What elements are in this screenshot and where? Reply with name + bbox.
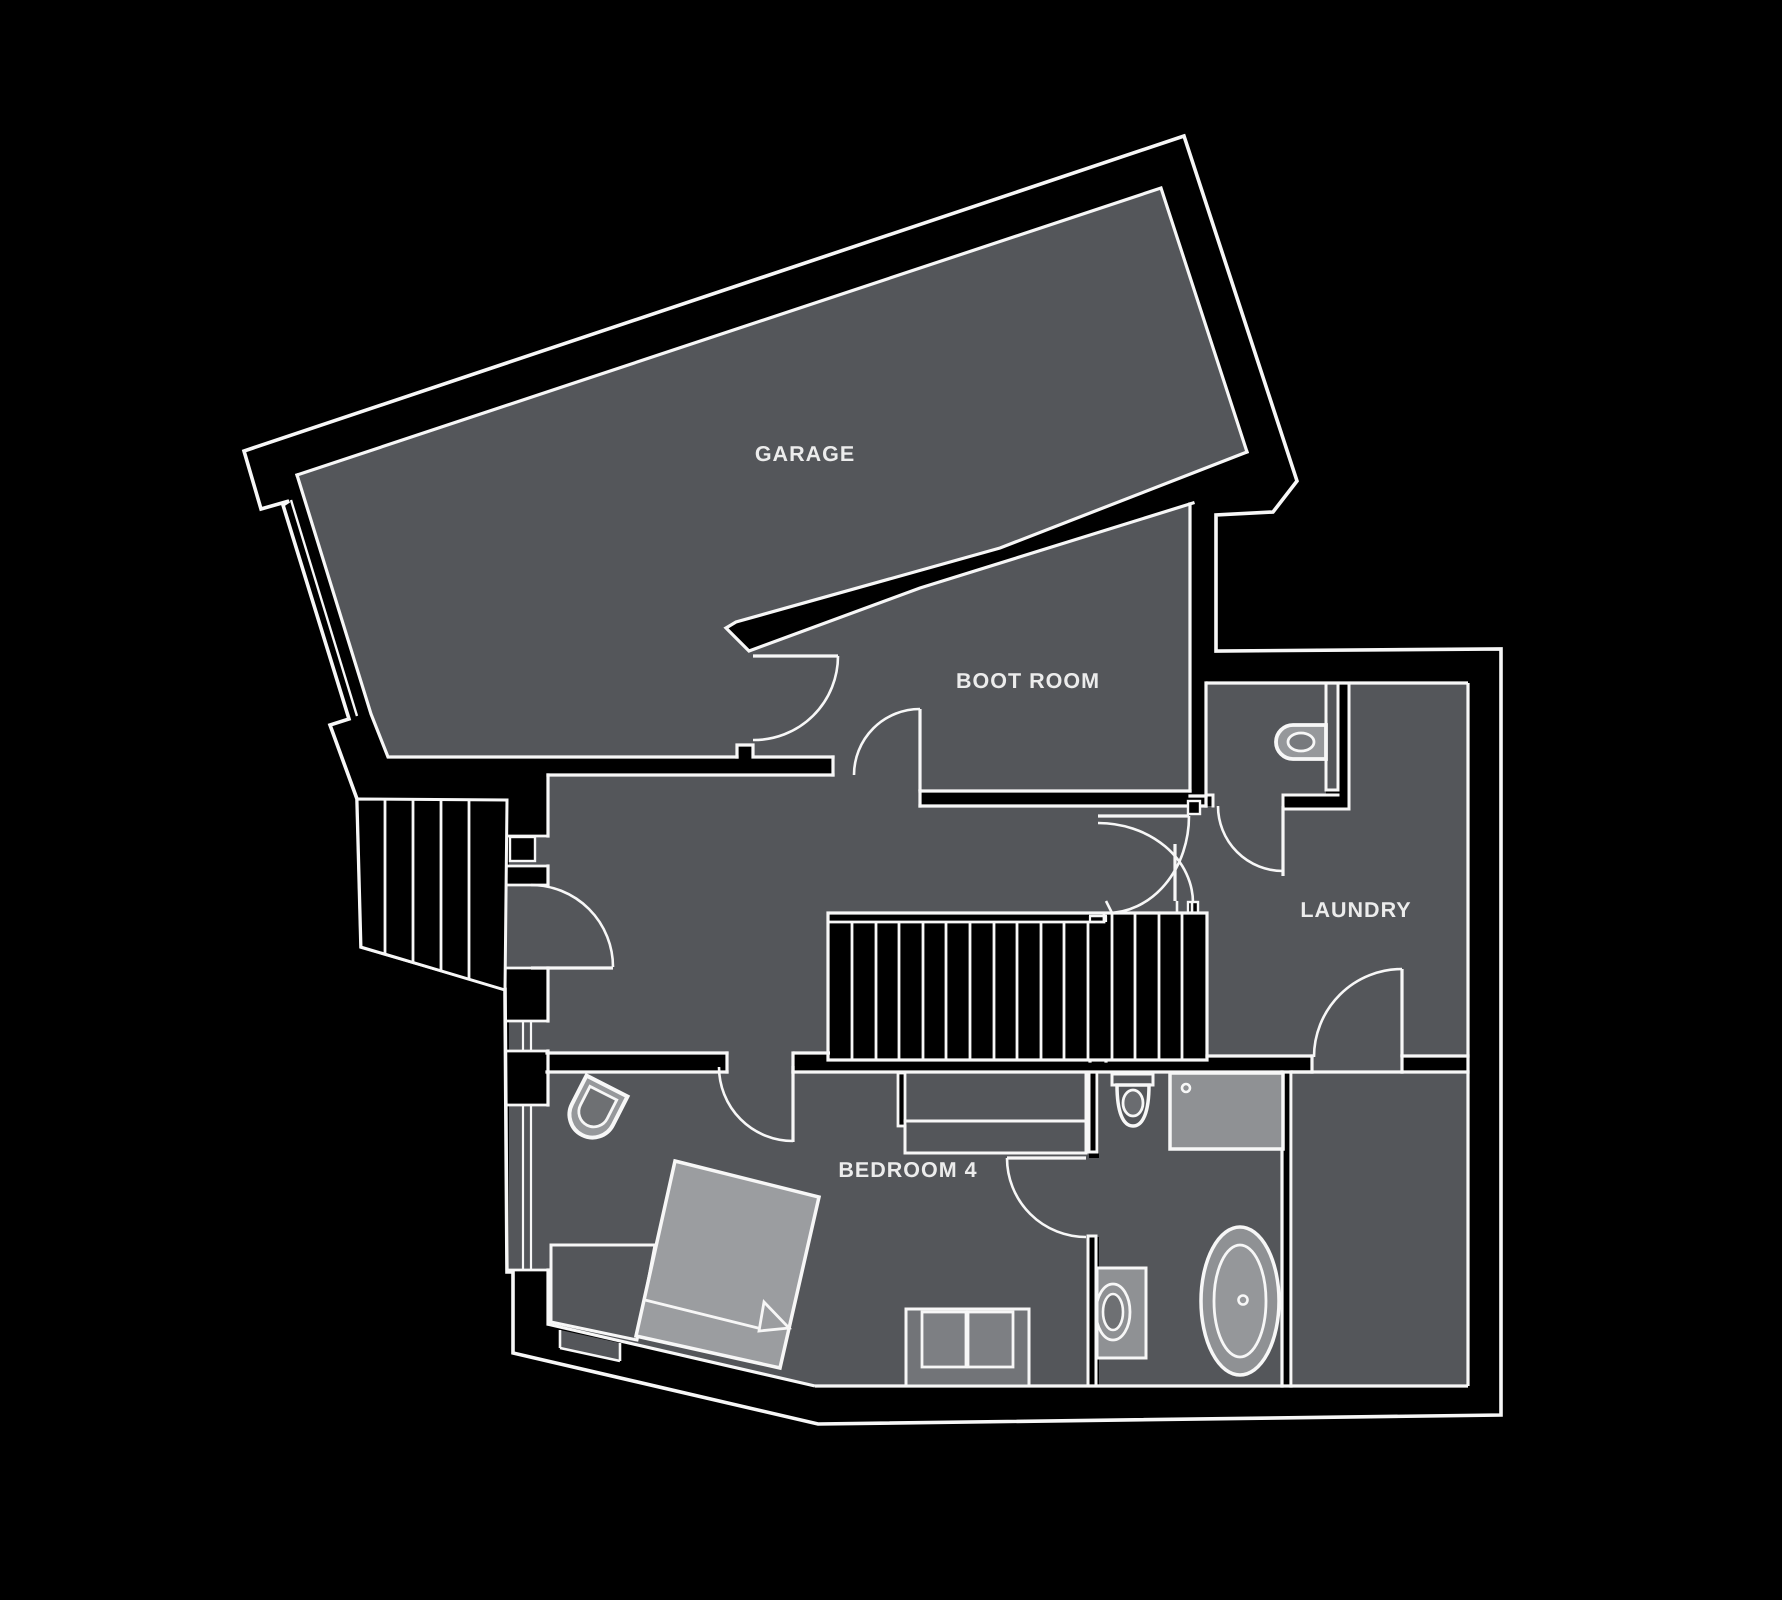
svg-text:GARAGE: GARAGE — [755, 442, 855, 466]
svg-text:BOOT ROOM: BOOT ROOM — [956, 669, 1100, 693]
svg-text:BEDROOM 4: BEDROOM 4 — [838, 1158, 977, 1182]
svg-text:LAUNDRY: LAUNDRY — [1300, 898, 1411, 922]
